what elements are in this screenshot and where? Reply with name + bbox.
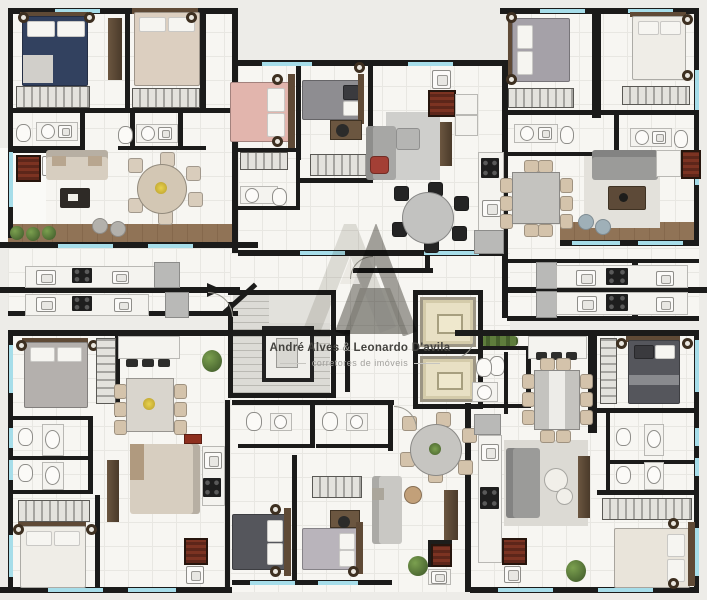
washing-machine <box>431 544 452 567</box>
wardrobe <box>18 500 90 522</box>
plant <box>202 350 222 372</box>
wall <box>606 412 610 490</box>
bathroom-sink <box>45 430 60 449</box>
pillow <box>130 456 144 468</box>
sofa <box>46 150 108 180</box>
toilet <box>616 466 631 484</box>
duvet-fold <box>23 55 53 83</box>
wardrobe <box>16 86 90 108</box>
wardrobe <box>132 88 200 108</box>
wall-art <box>184 434 202 444</box>
pillow <box>54 531 80 546</box>
pillow <box>343 101 359 116</box>
window <box>572 241 620 245</box>
pouf <box>595 219 611 235</box>
window <box>148 244 193 248</box>
pillow <box>267 520 283 542</box>
sink <box>656 271 674 286</box>
cabinet <box>455 94 478 115</box>
pillow <box>517 51 533 75</box>
wall <box>425 253 430 273</box>
bed <box>22 16 88 86</box>
wall <box>592 8 601 118</box>
toilet <box>246 412 262 431</box>
fridge <box>474 230 504 254</box>
sconce <box>186 12 197 23</box>
window <box>262 62 312 66</box>
sconce <box>13 524 24 535</box>
kitchen-island <box>118 336 180 359</box>
wall <box>88 416 93 494</box>
bed <box>628 340 680 404</box>
sink <box>481 444 499 461</box>
chair <box>458 460 473 475</box>
ottoman <box>396 128 420 150</box>
fridge <box>154 262 180 288</box>
window <box>695 70 699 110</box>
laundry-sink <box>186 566 204 584</box>
side-table <box>404 486 422 504</box>
bathroom-sink <box>41 124 55 139</box>
wardrobe <box>310 154 370 176</box>
desk-chair <box>336 124 349 137</box>
stove <box>203 478 221 497</box>
laundry-cabinet <box>656 150 681 177</box>
tv-panel <box>107 460 119 522</box>
sink <box>431 571 447 584</box>
sofa <box>130 444 200 514</box>
tv-panel <box>444 490 458 540</box>
window <box>638 241 683 245</box>
chair <box>580 374 593 389</box>
stove <box>72 296 92 311</box>
headboard <box>356 522 363 574</box>
stove <box>606 294 628 311</box>
chair <box>580 410 593 425</box>
window <box>318 581 358 585</box>
stair-landing <box>269 295 330 323</box>
tv-panel <box>578 456 590 518</box>
sconce <box>84 12 95 23</box>
chair <box>538 224 553 237</box>
pillow <box>655 345 675 359</box>
pillow <box>372 476 384 488</box>
chair <box>540 430 555 443</box>
pillow <box>27 21 55 37</box>
bathroom-sink <box>45 466 60 485</box>
plant <box>42 226 56 240</box>
wall <box>413 290 483 295</box>
sconce <box>506 12 517 23</box>
sconce <box>668 518 679 529</box>
wall <box>228 393 336 398</box>
wall <box>296 60 301 160</box>
pillow <box>592 160 605 170</box>
wall <box>331 290 336 398</box>
wall <box>480 346 530 350</box>
pillow <box>130 468 144 480</box>
plant <box>26 227 40 241</box>
bathroom-sink <box>635 130 649 145</box>
chair <box>174 384 187 399</box>
toilet <box>560 126 574 144</box>
sink <box>482 200 501 217</box>
wall <box>504 352 508 414</box>
toilet <box>18 464 33 482</box>
stove <box>481 158 499 178</box>
chair <box>560 214 573 229</box>
pillow <box>506 448 518 460</box>
bed <box>232 514 286 570</box>
closet-panel <box>108 18 122 80</box>
sconce <box>682 338 693 349</box>
wardrobe <box>312 476 362 498</box>
pillow <box>592 150 605 160</box>
wall <box>95 495 100 587</box>
wall <box>0 242 258 248</box>
sink <box>577 296 597 312</box>
sink <box>576 270 596 286</box>
sconce <box>18 12 29 23</box>
washing-machine <box>428 90 456 117</box>
fridge <box>536 262 557 289</box>
window <box>695 458 699 476</box>
chair <box>188 192 203 207</box>
pillow <box>634 345 654 359</box>
wall <box>13 490 91 494</box>
pillow <box>638 21 659 35</box>
bed <box>24 342 88 408</box>
chair <box>454 196 469 211</box>
bathroom-sink <box>520 126 534 141</box>
bed <box>302 80 362 120</box>
headboard <box>358 74 364 124</box>
chair <box>186 166 201 181</box>
centerpiece <box>155 182 167 194</box>
chair <box>580 392 593 407</box>
window <box>48 588 103 592</box>
sconce <box>348 566 359 577</box>
wall <box>200 8 206 108</box>
bathroom-sink <box>477 385 492 400</box>
pillow <box>267 543 283 565</box>
pillow <box>57 21 85 37</box>
tv-panel <box>440 122 452 166</box>
pillow <box>88 156 102 166</box>
toilet <box>616 428 631 446</box>
window <box>128 588 176 592</box>
armchair <box>370 156 389 174</box>
sconce <box>16 340 27 351</box>
pillow <box>343 85 359 100</box>
tray <box>68 194 78 201</box>
pillow <box>339 550 355 567</box>
bathroom-sink <box>141 126 155 141</box>
pillow <box>30 347 55 362</box>
pillow <box>506 472 518 484</box>
pillow <box>506 460 518 472</box>
sconce <box>272 136 283 147</box>
wall <box>413 404 483 409</box>
sconce <box>272 74 283 85</box>
stool <box>142 359 154 367</box>
bathroom-sink <box>245 188 259 203</box>
bed <box>632 16 686 80</box>
sink <box>538 127 552 140</box>
bed <box>302 528 358 570</box>
stool <box>126 359 138 367</box>
headboard <box>284 508 291 576</box>
pouf <box>578 214 594 230</box>
pillow <box>267 88 285 112</box>
centerpiece <box>143 398 155 410</box>
wall <box>125 8 130 108</box>
wall <box>238 206 298 210</box>
washing-machine <box>184 538 208 565</box>
wall <box>597 490 697 495</box>
duvet-fold <box>629 375 679 385</box>
wall <box>80 112 85 150</box>
toilet <box>476 358 492 377</box>
coffee-table <box>556 488 573 505</box>
sink <box>204 452 222 469</box>
toilet <box>272 188 287 206</box>
sconce <box>86 524 97 535</box>
wall <box>178 112 183 150</box>
wardrobe <box>96 338 116 404</box>
wall <box>13 456 91 460</box>
pillow <box>267 113 285 137</box>
chair <box>452 226 467 241</box>
bed <box>134 12 200 86</box>
fridge <box>474 414 501 435</box>
dining-table <box>512 172 560 224</box>
sink <box>112 271 129 284</box>
planter-strip <box>480 336 518 346</box>
pillow <box>26 531 52 546</box>
bathroom-sink <box>274 415 287 429</box>
pouf <box>110 221 126 237</box>
sconce <box>668 578 679 589</box>
laundry-sink <box>432 70 451 89</box>
wall <box>413 290 418 409</box>
sconce <box>682 70 693 81</box>
pillow <box>139 17 166 32</box>
window <box>695 428 699 446</box>
sink <box>114 298 132 312</box>
sink <box>158 127 172 140</box>
toilet <box>18 428 33 446</box>
wall <box>310 400 315 448</box>
toilet <box>674 130 688 148</box>
window <box>9 345 13 393</box>
fridge <box>165 292 189 318</box>
wardrobe <box>602 498 692 520</box>
sconce <box>270 566 281 577</box>
wall <box>292 455 297 585</box>
wall <box>238 444 310 448</box>
wall <box>13 416 91 420</box>
window <box>9 152 13 207</box>
pillow <box>660 21 681 35</box>
sconce <box>682 14 693 25</box>
cabinet <box>455 115 478 136</box>
stool <box>158 359 170 367</box>
bed <box>20 526 86 588</box>
window <box>300 251 345 255</box>
wall <box>388 403 393 451</box>
sink <box>36 297 56 312</box>
pillow <box>57 347 82 362</box>
wall <box>316 444 388 448</box>
toilet <box>16 124 31 142</box>
pillow <box>130 444 144 456</box>
sconce <box>354 62 365 73</box>
floor-plan: André Alves&Leonardo D'avila corretores … <box>0 0 707 600</box>
table-runner <box>549 371 565 429</box>
wall <box>296 148 300 210</box>
window <box>9 460 13 480</box>
window <box>498 588 553 592</box>
chair <box>174 402 187 417</box>
window <box>408 62 453 66</box>
wall <box>413 349 483 354</box>
pillow <box>592 170 605 180</box>
window <box>9 428 13 448</box>
desk-chair <box>338 516 350 528</box>
elevator-cab <box>420 356 476 402</box>
wall <box>225 400 230 592</box>
toilet <box>322 412 338 431</box>
bathroom-sink <box>350 415 363 429</box>
window <box>695 528 699 576</box>
chair <box>560 178 573 193</box>
sofa <box>506 448 540 518</box>
plant <box>566 560 586 582</box>
wardrobe <box>600 338 617 404</box>
bed <box>512 18 570 82</box>
washing-machine <box>16 155 41 182</box>
washing-machine <box>681 150 701 179</box>
wardrobe <box>622 86 690 105</box>
sink <box>656 297 674 312</box>
sconce <box>270 504 281 515</box>
chair <box>560 196 573 211</box>
dining-table <box>402 192 454 244</box>
bed <box>230 82 290 142</box>
decor <box>619 193 628 202</box>
wall <box>298 178 373 183</box>
bed <box>614 528 690 588</box>
chair <box>556 430 571 443</box>
sofa <box>372 476 402 544</box>
wall <box>507 152 595 156</box>
bathroom-sink <box>647 466 661 484</box>
chair <box>174 420 187 435</box>
stove <box>606 268 628 285</box>
headboard <box>688 522 695 586</box>
wall <box>8 108 233 113</box>
fridge <box>536 291 557 318</box>
pillow <box>372 488 384 500</box>
sofa <box>592 150 658 180</box>
toilet <box>118 126 133 144</box>
plant <box>10 226 24 240</box>
pillow <box>667 534 685 557</box>
dining-table <box>534 370 580 430</box>
chair <box>394 186 409 201</box>
pouf <box>92 218 108 234</box>
chair <box>128 158 143 173</box>
pillow <box>517 25 533 49</box>
window <box>250 581 295 585</box>
plant <box>408 556 428 576</box>
headboard <box>288 74 295 148</box>
stove <box>480 487 499 509</box>
sconce <box>616 338 627 349</box>
sink <box>652 131 666 144</box>
window <box>695 340 699 392</box>
pillow <box>52 156 66 166</box>
wall <box>694 8 699 243</box>
washing-machine <box>502 538 527 565</box>
wall <box>345 330 350 392</box>
window <box>598 588 653 592</box>
pillow <box>339 533 355 550</box>
sink <box>58 125 72 138</box>
sconce <box>506 74 517 85</box>
coffee-table <box>608 186 646 210</box>
window <box>540 9 585 13</box>
wardrobe <box>508 88 574 108</box>
laundry-sink <box>504 566 521 583</box>
wall <box>597 408 697 413</box>
stove <box>72 268 92 283</box>
centerpiece <box>429 443 441 455</box>
chair <box>524 224 539 237</box>
sink <box>36 270 56 285</box>
window <box>9 535 13 577</box>
coffee-table <box>60 188 90 208</box>
wardrobe <box>240 152 288 170</box>
window <box>58 244 113 248</box>
bathroom-sink <box>647 430 661 448</box>
